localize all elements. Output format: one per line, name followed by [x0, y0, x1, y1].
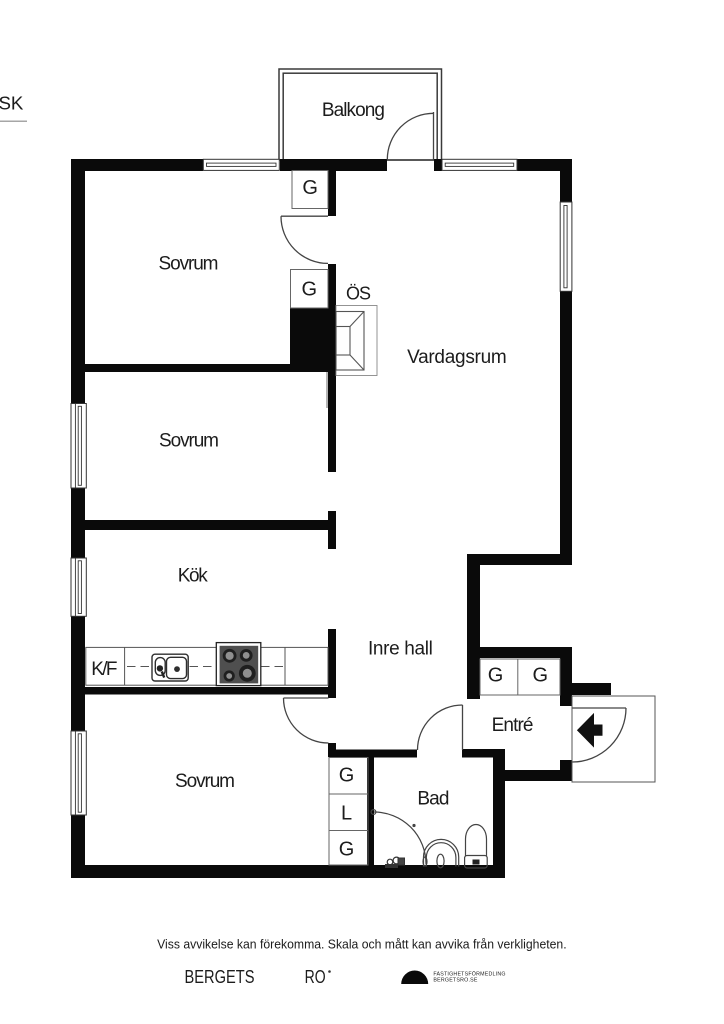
svg-text:G: G	[339, 839, 355, 861]
svg-text:Inre hall: Inre hall	[368, 638, 433, 659]
svg-text:Bad: Bad	[417, 788, 449, 809]
svg-text:Vardagsrum: Vardagsrum	[407, 347, 507, 368]
svg-text:FASTIGHETSFÖRMEDLING: FASTIGHETSFÖRMEDLING	[433, 970, 505, 977]
svg-text:K/F: K/F	[91, 659, 117, 680]
svg-text:ÖS: ÖS	[346, 283, 371, 303]
svg-text:Sovrum: Sovrum	[159, 254, 219, 275]
svg-text:RO: RO	[305, 967, 326, 987]
svg-text:Sovrum: Sovrum	[175, 771, 235, 792]
svg-text:BERGETSRO.SE: BERGETSRO.SE	[433, 978, 477, 984]
svg-text:Sovrum: Sovrum	[159, 430, 219, 451]
svg-text:SK: SK	[0, 92, 24, 113]
svg-text:G: G	[302, 279, 318, 301]
svg-text:BERGETS: BERGETS	[185, 967, 255, 987]
svg-text:Kök: Kök	[178, 565, 209, 586]
svg-text:G: G	[339, 765, 355, 787]
svg-text:G: G	[302, 177, 318, 199]
svg-text:L: L	[341, 803, 352, 825]
svg-text:Balkong: Balkong	[322, 100, 385, 121]
svg-text:Viss avvikelse kan förekomma.: Viss avvikelse kan förekomma. Skala och …	[157, 937, 566, 951]
svg-text:Entré: Entré	[492, 715, 534, 736]
svg-text:G: G	[488, 665, 504, 687]
svg-text:G: G	[533, 665, 549, 687]
